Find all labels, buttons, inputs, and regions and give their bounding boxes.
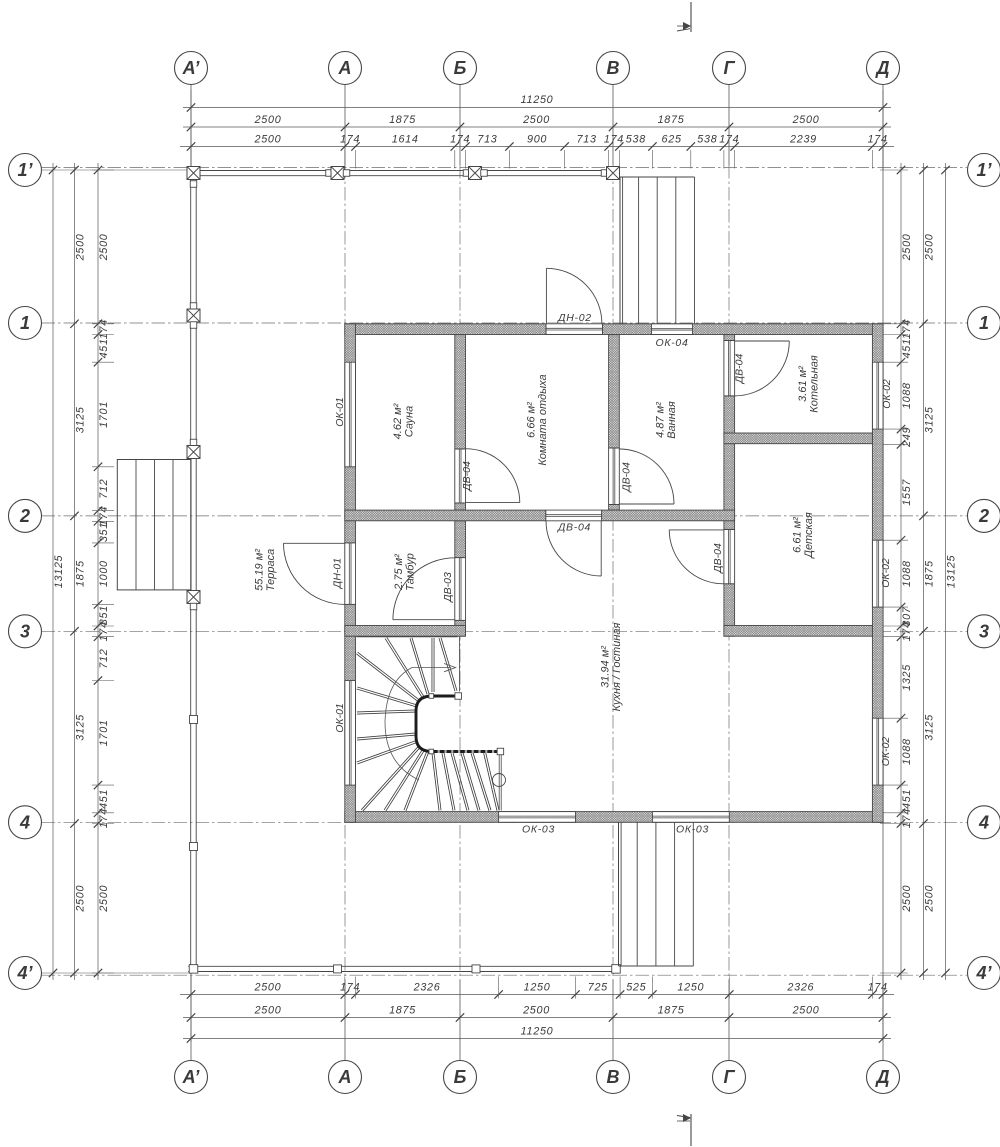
svg-text:3.61 м²: 3.61 м² bbox=[797, 366, 809, 402]
svg-text:Кухня / Гостиная: Кухня / Гостиная bbox=[611, 622, 623, 711]
svg-text:2500: 2500 bbox=[522, 1005, 550, 1017]
svg-text:2326: 2326 bbox=[786, 982, 814, 994]
svg-text:2500: 2500 bbox=[253, 982, 281, 994]
svg-text:2: 2 bbox=[978, 506, 989, 526]
svg-text:2500: 2500 bbox=[254, 1005, 282, 1017]
svg-text:Г: Г bbox=[723, 58, 735, 78]
svg-text:1875: 1875 bbox=[75, 560, 87, 587]
svg-text:3125: 3125 bbox=[75, 714, 87, 741]
svg-text:1’: 1’ bbox=[976, 160, 992, 180]
svg-text:ОК-03: ОК-03 bbox=[522, 824, 555, 836]
svg-text:1250: 1250 bbox=[524, 982, 551, 994]
svg-text:1: 1 bbox=[20, 313, 30, 333]
svg-text:1325: 1325 bbox=[901, 664, 913, 691]
svg-text:1557: 1557 bbox=[901, 479, 913, 506]
svg-text:451: 451 bbox=[901, 789, 913, 809]
svg-text:ДН-02: ДН-02 bbox=[557, 312, 592, 324]
svg-text:1088: 1088 bbox=[901, 382, 913, 409]
svg-text:2500: 2500 bbox=[901, 885, 913, 913]
svg-text:2326: 2326 bbox=[413, 982, 441, 994]
svg-text:13125: 13125 bbox=[53, 554, 65, 588]
svg-text:4: 4 bbox=[19, 812, 30, 832]
svg-text:451: 451 bbox=[98, 338, 110, 358]
svg-text:900: 900 bbox=[527, 134, 547, 146]
svg-text:712: 712 bbox=[98, 479, 110, 499]
svg-text:174: 174 bbox=[98, 621, 110, 641]
svg-text:В: В bbox=[607, 58, 620, 78]
svg-text:11250: 11250 bbox=[521, 1026, 554, 1038]
svg-text:Сауна: Сауна bbox=[404, 406, 416, 438]
svg-text:ДВ-04: ДВ-04 bbox=[557, 522, 591, 534]
svg-text:А: А bbox=[338, 1067, 352, 1087]
svg-text:ОК-01: ОК-01 bbox=[334, 397, 346, 427]
svg-text:1875: 1875 bbox=[658, 114, 685, 126]
svg-text:Комната отдыха: Комната отдыха bbox=[537, 374, 549, 465]
svg-text:4.62 м²: 4.62 м² bbox=[392, 403, 404, 439]
svg-text:Детская: Детская bbox=[803, 512, 815, 560]
svg-text:451: 451 bbox=[901, 338, 913, 358]
svg-text:А’: А’ bbox=[182, 1067, 201, 1087]
svg-text:Б: Б bbox=[454, 58, 467, 78]
svg-text:3125: 3125 bbox=[924, 406, 936, 433]
svg-text:174: 174 bbox=[340, 982, 360, 994]
svg-text:2500: 2500 bbox=[253, 134, 281, 146]
svg-text:2500: 2500 bbox=[254, 114, 282, 126]
svg-text:2500: 2500 bbox=[924, 885, 936, 913]
svg-text:В: В bbox=[607, 1067, 620, 1087]
svg-text:1088: 1088 bbox=[901, 560, 913, 587]
svg-text:ОК-04: ОК-04 bbox=[655, 337, 688, 349]
svg-text:4’: 4’ bbox=[16, 963, 33, 983]
svg-text:ОК-02: ОК-02 bbox=[880, 558, 892, 588]
svg-text:3: 3 bbox=[20, 621, 30, 641]
svg-text:Котельная: Котельная bbox=[809, 355, 821, 413]
svg-text:174: 174 bbox=[901, 808, 913, 828]
svg-text:174: 174 bbox=[719, 134, 739, 146]
svg-text:174: 174 bbox=[868, 982, 888, 994]
svg-text:713: 713 bbox=[577, 134, 597, 146]
svg-text:А: А bbox=[338, 58, 352, 78]
svg-text:2500: 2500 bbox=[98, 233, 110, 261]
svg-text:525: 525 bbox=[626, 982, 646, 994]
svg-text:1250: 1250 bbox=[677, 982, 704, 994]
svg-text:ДВ-03: ДВ-03 bbox=[442, 572, 454, 603]
svg-text:ДВ-04: ДВ-04 bbox=[621, 462, 633, 493]
svg-text:Ванная: Ванная bbox=[666, 401, 678, 439]
svg-text:725: 725 bbox=[588, 982, 608, 994]
svg-text:3: 3 bbox=[979, 621, 989, 641]
svg-text:ДВ-04: ДВ-04 bbox=[734, 354, 746, 385]
svg-text:2500: 2500 bbox=[522, 114, 550, 126]
svg-text:1875: 1875 bbox=[924, 560, 936, 587]
svg-text:11250: 11250 bbox=[521, 94, 554, 106]
svg-text:1701: 1701 bbox=[98, 401, 110, 428]
svg-text:625: 625 bbox=[662, 134, 682, 146]
svg-text:1875: 1875 bbox=[389, 114, 416, 126]
svg-text:ОК-03: ОК-03 bbox=[676, 824, 709, 836]
svg-text:Д: Д bbox=[875, 58, 890, 78]
svg-text:713: 713 bbox=[477, 134, 497, 146]
svg-text:55.19 м²: 55.19 м² bbox=[254, 549, 266, 591]
svg-text:2: 2 bbox=[19, 506, 30, 526]
svg-text:2500: 2500 bbox=[75, 885, 87, 913]
svg-text:ОК-02: ОК-02 bbox=[881, 379, 893, 409]
svg-text:А’: А’ bbox=[182, 58, 201, 78]
svg-text:13125: 13125 bbox=[946, 554, 958, 588]
svg-text:31.94 м²: 31.94 м² bbox=[600, 646, 612, 688]
svg-text:351: 351 bbox=[98, 522, 110, 542]
svg-text:3125: 3125 bbox=[924, 714, 936, 741]
svg-text:712: 712 bbox=[98, 649, 110, 669]
svg-text:1875: 1875 bbox=[658, 1005, 685, 1017]
svg-text:2500: 2500 bbox=[901, 233, 913, 261]
svg-text:ОК-02: ОК-02 bbox=[880, 737, 892, 767]
svg-text:1’: 1’ bbox=[17, 160, 33, 180]
svg-text:4’: 4’ bbox=[975, 963, 992, 983]
svg-text:Терраса: Терраса bbox=[265, 549, 277, 591]
svg-text:ДВ-04: ДВ-04 bbox=[712, 543, 724, 574]
svg-text:Г: Г bbox=[723, 1067, 735, 1087]
svg-text:1088: 1088 bbox=[901, 738, 913, 765]
svg-text:ДВ-04: ДВ-04 bbox=[461, 461, 473, 492]
svg-text:1701: 1701 bbox=[98, 719, 110, 746]
svg-text:174: 174 bbox=[901, 621, 913, 641]
svg-text:ОК-01: ОК-01 bbox=[334, 703, 346, 733]
svg-text:174: 174 bbox=[604, 134, 624, 146]
svg-text:174: 174 bbox=[340, 134, 360, 146]
svg-text:6.61 м²: 6.61 м² bbox=[792, 517, 804, 553]
svg-text:1875: 1875 bbox=[389, 1005, 416, 1017]
svg-text:174: 174 bbox=[901, 319, 913, 339]
svg-text:174: 174 bbox=[450, 134, 470, 146]
svg-text:Б: Б bbox=[454, 1067, 467, 1087]
svg-text:2500: 2500 bbox=[75, 233, 87, 261]
svg-text:3125: 3125 bbox=[75, 406, 87, 433]
svg-text:4: 4 bbox=[978, 812, 989, 832]
svg-text:2500: 2500 bbox=[792, 1005, 820, 1017]
svg-text:174: 174 bbox=[98, 319, 110, 339]
svg-text:Д: Д bbox=[875, 1067, 890, 1087]
svg-text:1614: 1614 bbox=[392, 134, 419, 146]
svg-text:2500: 2500 bbox=[792, 114, 820, 126]
svg-text:174: 174 bbox=[98, 808, 110, 828]
svg-text:538: 538 bbox=[626, 134, 646, 146]
svg-text:2239: 2239 bbox=[789, 134, 817, 146]
svg-text:1000: 1000 bbox=[98, 560, 110, 587]
svg-text:1: 1 bbox=[979, 313, 989, 333]
svg-text:Тамбур: Тамбур bbox=[405, 553, 417, 591]
svg-text:6.66 м²: 6.66 м² bbox=[526, 402, 538, 438]
svg-text:451: 451 bbox=[98, 789, 110, 809]
svg-text:174: 174 bbox=[868, 134, 888, 146]
svg-text:2500: 2500 bbox=[98, 885, 110, 913]
svg-text:2500: 2500 bbox=[924, 233, 936, 261]
svg-text:4.87 м²: 4.87 м² bbox=[655, 402, 667, 438]
svg-text:ДН-01: ДН-01 bbox=[332, 558, 344, 589]
svg-text:2.75 м²: 2.75 м² bbox=[393, 554, 405, 591]
svg-text:538: 538 bbox=[697, 134, 717, 146]
